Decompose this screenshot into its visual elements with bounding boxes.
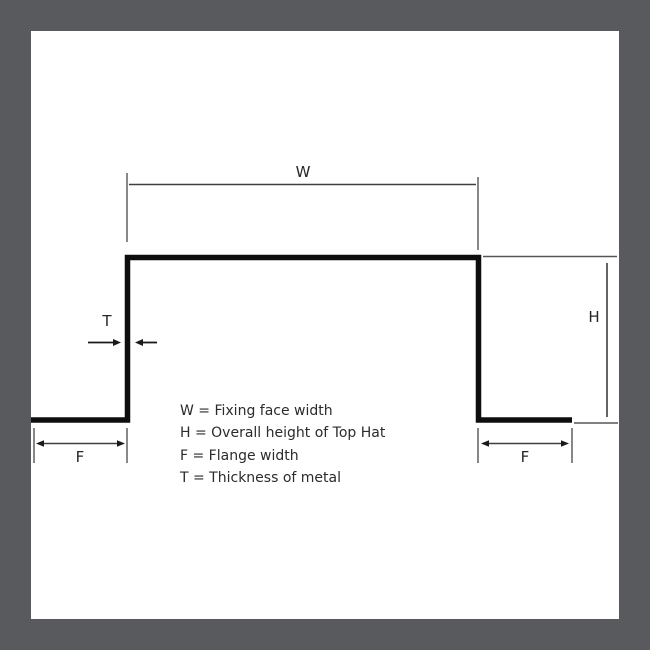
top-hat-profile-line bbox=[31, 258, 572, 421]
diagram-panel: W H F bbox=[31, 31, 619, 619]
f-right-arrowhead-right bbox=[561, 440, 569, 446]
w-dimension-label: W bbox=[296, 163, 311, 181]
f-right-dimension-label: F bbox=[521, 448, 530, 466]
h-dimension-label: H bbox=[588, 308, 599, 326]
h-dimension: H bbox=[483, 257, 618, 424]
legend: W = Fixing face width H = Overall height… bbox=[180, 400, 385, 490]
gray-border-frame: W H F bbox=[0, 0, 650, 650]
t-arrowhead-left-pointing bbox=[135, 339, 143, 346]
t-arrowhead-right-pointing bbox=[113, 339, 121, 346]
t-dimension: T bbox=[88, 312, 157, 346]
legend-line-t: T = Thickness of metal bbox=[180, 467, 385, 489]
legend-line-h: H = Overall height of Top Hat bbox=[180, 422, 385, 444]
f-dimension-right: F bbox=[478, 428, 572, 466]
legend-line-w: W = Fixing face width bbox=[180, 400, 385, 422]
w-dimension: W bbox=[127, 163, 478, 250]
f-left-dimension-label: F bbox=[76, 448, 85, 466]
legend-line-f: F = Flange width bbox=[180, 445, 385, 467]
t-dimension-label: T bbox=[101, 312, 112, 330]
f-left-arrowhead-right bbox=[117, 440, 125, 446]
top-hat-diagram: W H F bbox=[31, 31, 619, 619]
f-right-arrowhead-left bbox=[481, 440, 489, 446]
f-left-arrowhead-left bbox=[36, 440, 44, 446]
f-dimension-left: F bbox=[34, 428, 127, 466]
